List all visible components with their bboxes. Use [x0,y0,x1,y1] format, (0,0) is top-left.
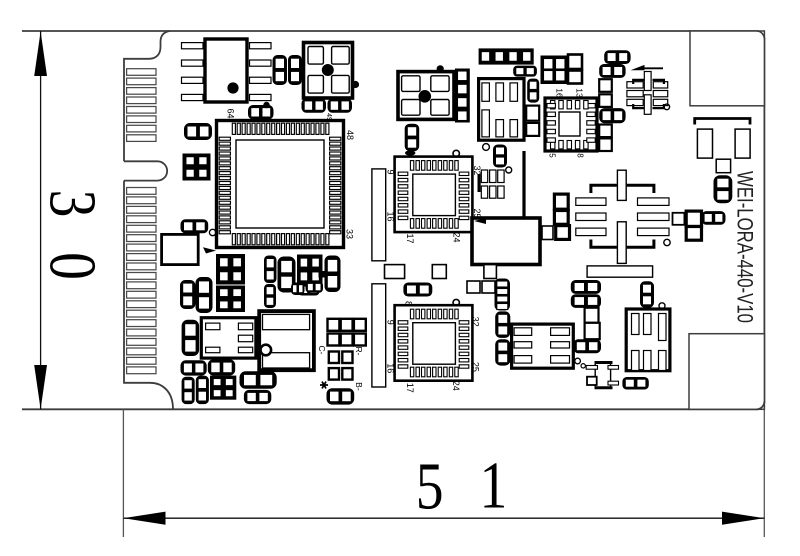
svg-text:49: 49 [325,113,332,121]
svg-text:0: 0 [36,252,110,280]
svg-text:33: 33 [345,229,355,239]
svg-text:24: 24 [452,232,462,242]
svg-text:8: 8 [576,153,585,158]
svg-text:1: 1 [479,449,507,523]
svg-text:9: 9 [386,169,396,174]
svg-text:✱: ✱ [317,380,329,389]
svg-text:B-: B- [354,382,364,391]
svg-text:C-: C- [317,346,327,355]
svg-text:R-: R- [354,347,364,356]
svg-text:5: 5 [416,450,444,524]
svg-text:WEI-LORA-440-V10: WEI-LORA-440-V10 [733,171,758,323]
svg-text:48: 48 [345,130,355,140]
svg-text:17: 17 [405,233,415,243]
svg-text:16: 16 [555,88,565,98]
svg-text:13: 13 [575,88,585,98]
svg-text:32: 32 [471,317,481,327]
svg-text:64: 64 [226,108,236,118]
svg-text:16: 16 [386,211,396,221]
svg-text:24: 24 [451,381,461,391]
svg-text:8: 8 [403,301,413,306]
svg-text:16: 16 [386,363,396,373]
svg-text:25: 25 [471,362,481,372]
svg-text:17: 17 [405,383,415,393]
svg-text:5: 5 [548,153,557,158]
svg-text:3: 3 [36,190,110,218]
svg-text:9: 9 [386,320,396,325]
